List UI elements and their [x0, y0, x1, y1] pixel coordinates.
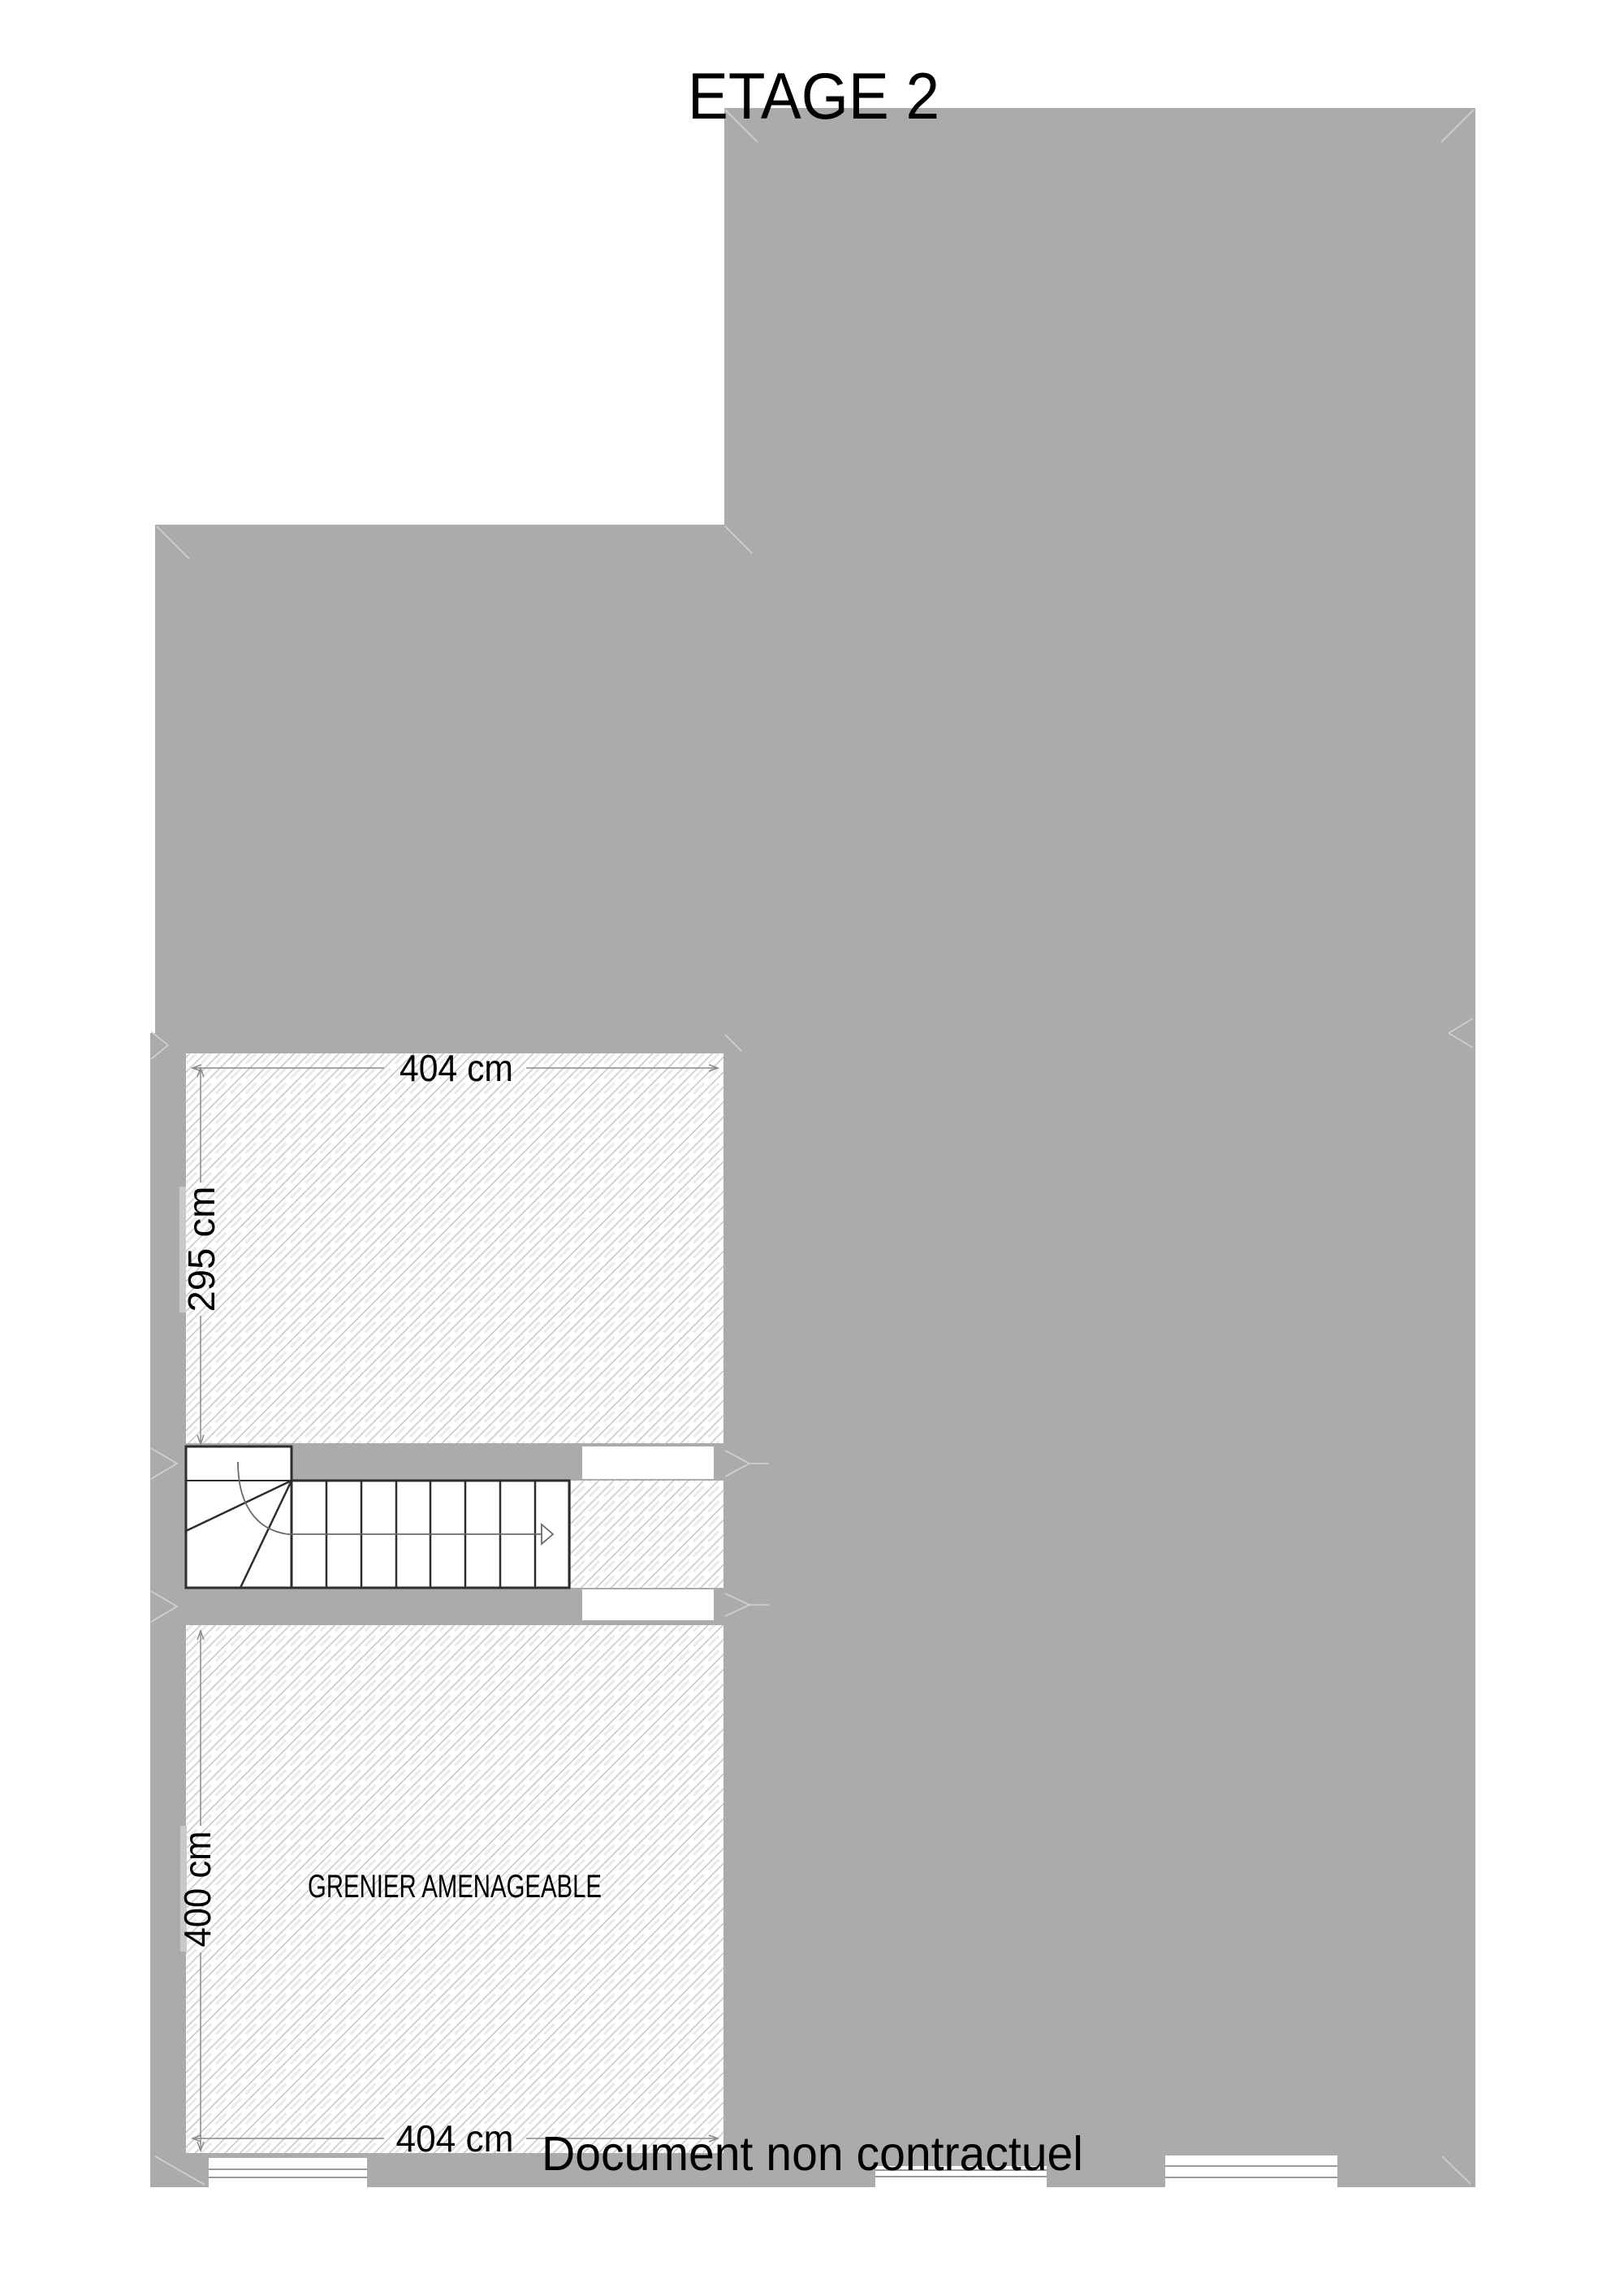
svg-text:GRENIER AMENAGEABLE: GRENIER AMENAGEABLE — [308, 1869, 602, 1905]
svg-text:ETAGE 2: ETAGE 2 — [688, 60, 939, 133]
svg-text:404 cm: 404 cm — [400, 1047, 513, 1089]
svg-text:Document non contractuel: Document non contractuel — [542, 2127, 1083, 2181]
svg-text:295 cm: 295 cm — [180, 1187, 222, 1312]
svg-text:404 cm: 404 cm — [396, 2117, 514, 2160]
svg-text:400 cm: 400 cm — [176, 1831, 218, 1948]
